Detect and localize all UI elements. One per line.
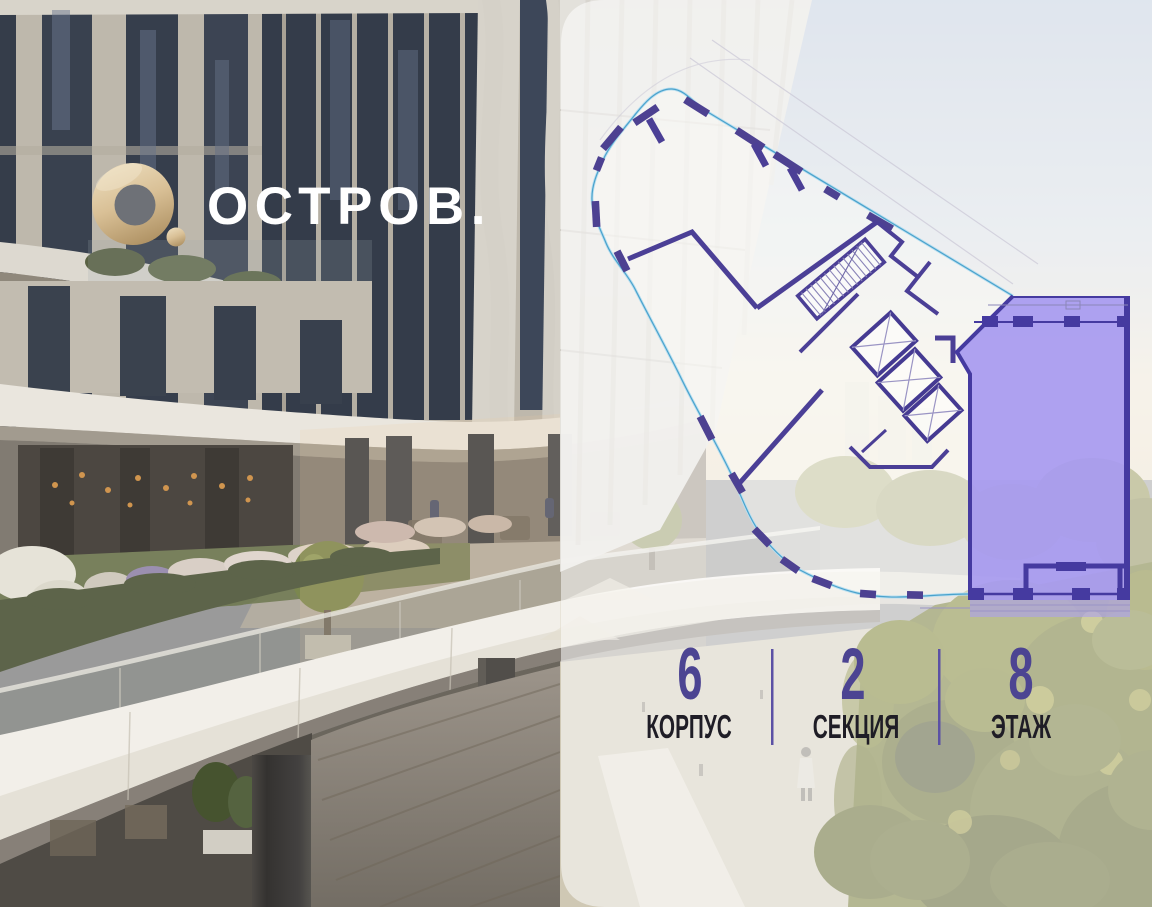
svg-text:6: 6 — [677, 633, 702, 715]
svg-text:ЭТАЖ: ЭТАЖ — [991, 708, 1052, 745]
svg-text:КОРПУС: КОРПУС — [646, 708, 732, 745]
svg-text:8: 8 — [1008, 633, 1033, 715]
svg-text:ОСТРОВ.: ОСТРОВ. — [207, 177, 492, 236]
svg-text:2: 2 — [840, 633, 865, 715]
svg-text:СЕКЦИЯ: СЕКЦИЯ — [813, 708, 900, 745]
